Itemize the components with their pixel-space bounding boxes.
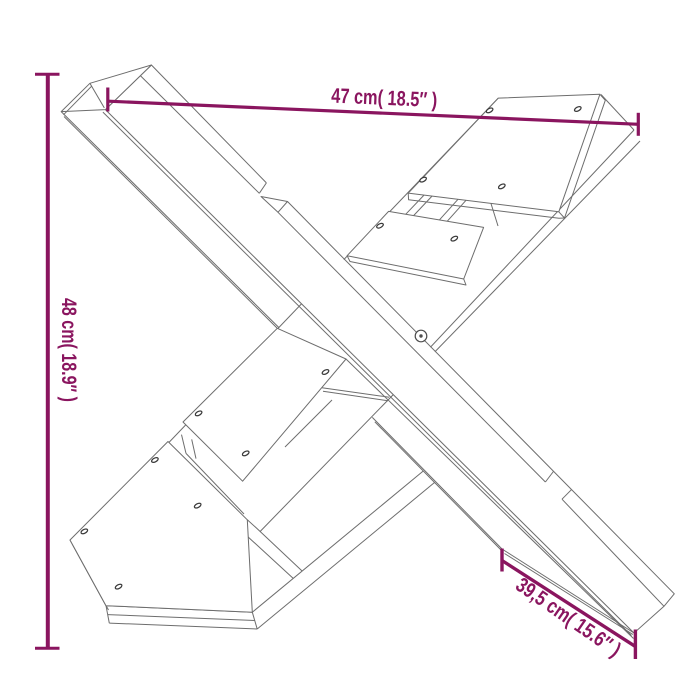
svg-text:47 cm( 18.5″ ): 47 cm( 18.5″ ) <box>331 85 438 113</box>
svg-text:48 cm( 18.9″ ): 48 cm( 18.9″ ) <box>57 298 80 402</box>
